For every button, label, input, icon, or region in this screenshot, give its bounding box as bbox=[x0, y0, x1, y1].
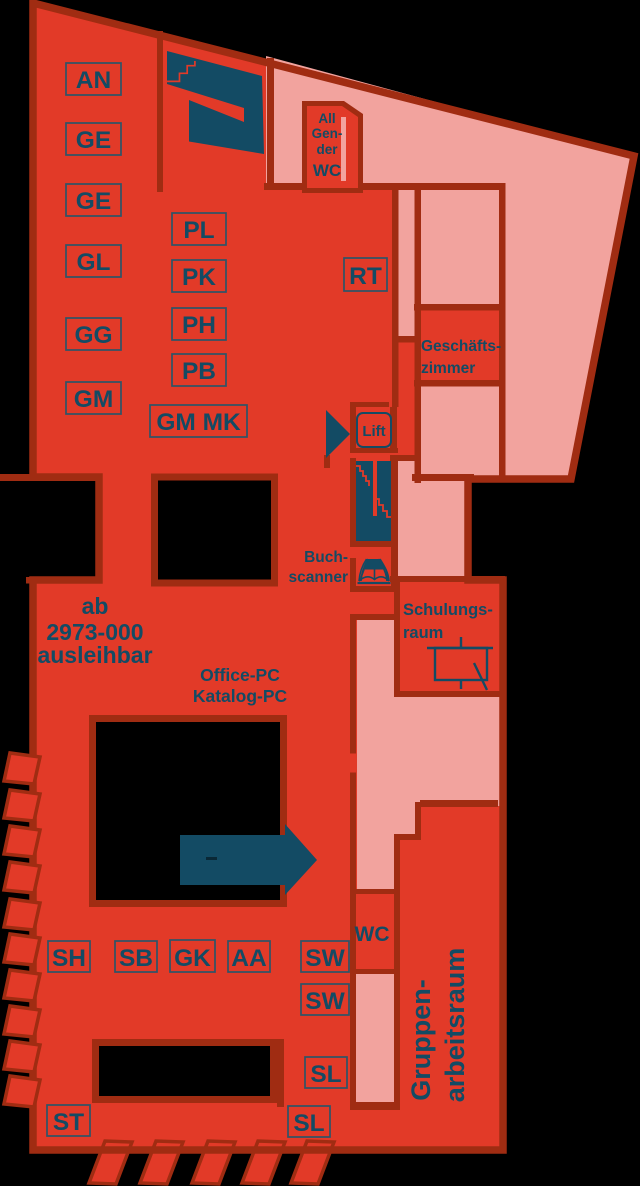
svg-text:SL: SL bbox=[293, 1110, 324, 1137]
svg-text:All: All bbox=[318, 111, 335, 126]
svg-text:WC: WC bbox=[313, 161, 341, 180]
svg-text:Schulungs-: Schulungs- bbox=[403, 601, 493, 619]
svg-text:PH: PH bbox=[182, 312, 216, 339]
svg-text:SB: SB bbox=[119, 945, 153, 972]
svg-text:GE: GE bbox=[76, 188, 111, 215]
svg-text:RT: RT bbox=[349, 263, 382, 290]
svg-text:Office-PC: Office-PC bbox=[200, 665, 280, 685]
svg-text:Geschäfts-: Geschäfts- bbox=[421, 338, 501, 355]
svg-text:GM MK: GM MK bbox=[156, 409, 241, 436]
svg-text:AN: AN bbox=[76, 67, 111, 94]
svg-text:ausleihbar: ausleihbar bbox=[37, 642, 152, 668]
svg-text:PL: PL bbox=[183, 217, 214, 244]
svg-text:Katalog-PC: Katalog-PC bbox=[193, 686, 288, 706]
svg-text:Buch-: Buch- bbox=[304, 549, 348, 566]
svg-text:arbeitsraum: arbeitsraum bbox=[440, 948, 470, 1103]
svg-text:SH: SH bbox=[52, 945, 86, 972]
svg-text:der: der bbox=[316, 142, 338, 157]
svg-text:GL: GL bbox=[76, 249, 110, 276]
svg-text:GE: GE bbox=[76, 127, 111, 154]
svg-text:SL: SL bbox=[310, 1061, 341, 1088]
svg-text:Gen-: Gen- bbox=[312, 126, 343, 141]
svg-text:GM: GM bbox=[74, 386, 113, 413]
svg-text:AA: AA bbox=[231, 945, 267, 972]
svg-text:Lift: Lift bbox=[362, 423, 385, 440]
svg-text:SW: SW bbox=[305, 988, 345, 1015]
svg-text:ab: ab bbox=[82, 593, 109, 619]
svg-text:PB: PB bbox=[182, 358, 216, 385]
svg-text:GG: GG bbox=[74, 322, 112, 349]
svg-text:scanner: scanner bbox=[289, 569, 348, 586]
svg-text:GK: GK bbox=[174, 945, 211, 972]
svg-text:Gruppen-: Gruppen- bbox=[406, 979, 436, 1101]
svg-text:raum: raum bbox=[403, 624, 443, 642]
svg-text:SW: SW bbox=[305, 945, 345, 972]
svg-text:WC: WC bbox=[355, 923, 390, 946]
svg-text:zimmer: zimmer bbox=[421, 360, 475, 377]
svg-text:PK: PK bbox=[182, 264, 216, 291]
svg-text:ST: ST bbox=[53, 1109, 84, 1136]
